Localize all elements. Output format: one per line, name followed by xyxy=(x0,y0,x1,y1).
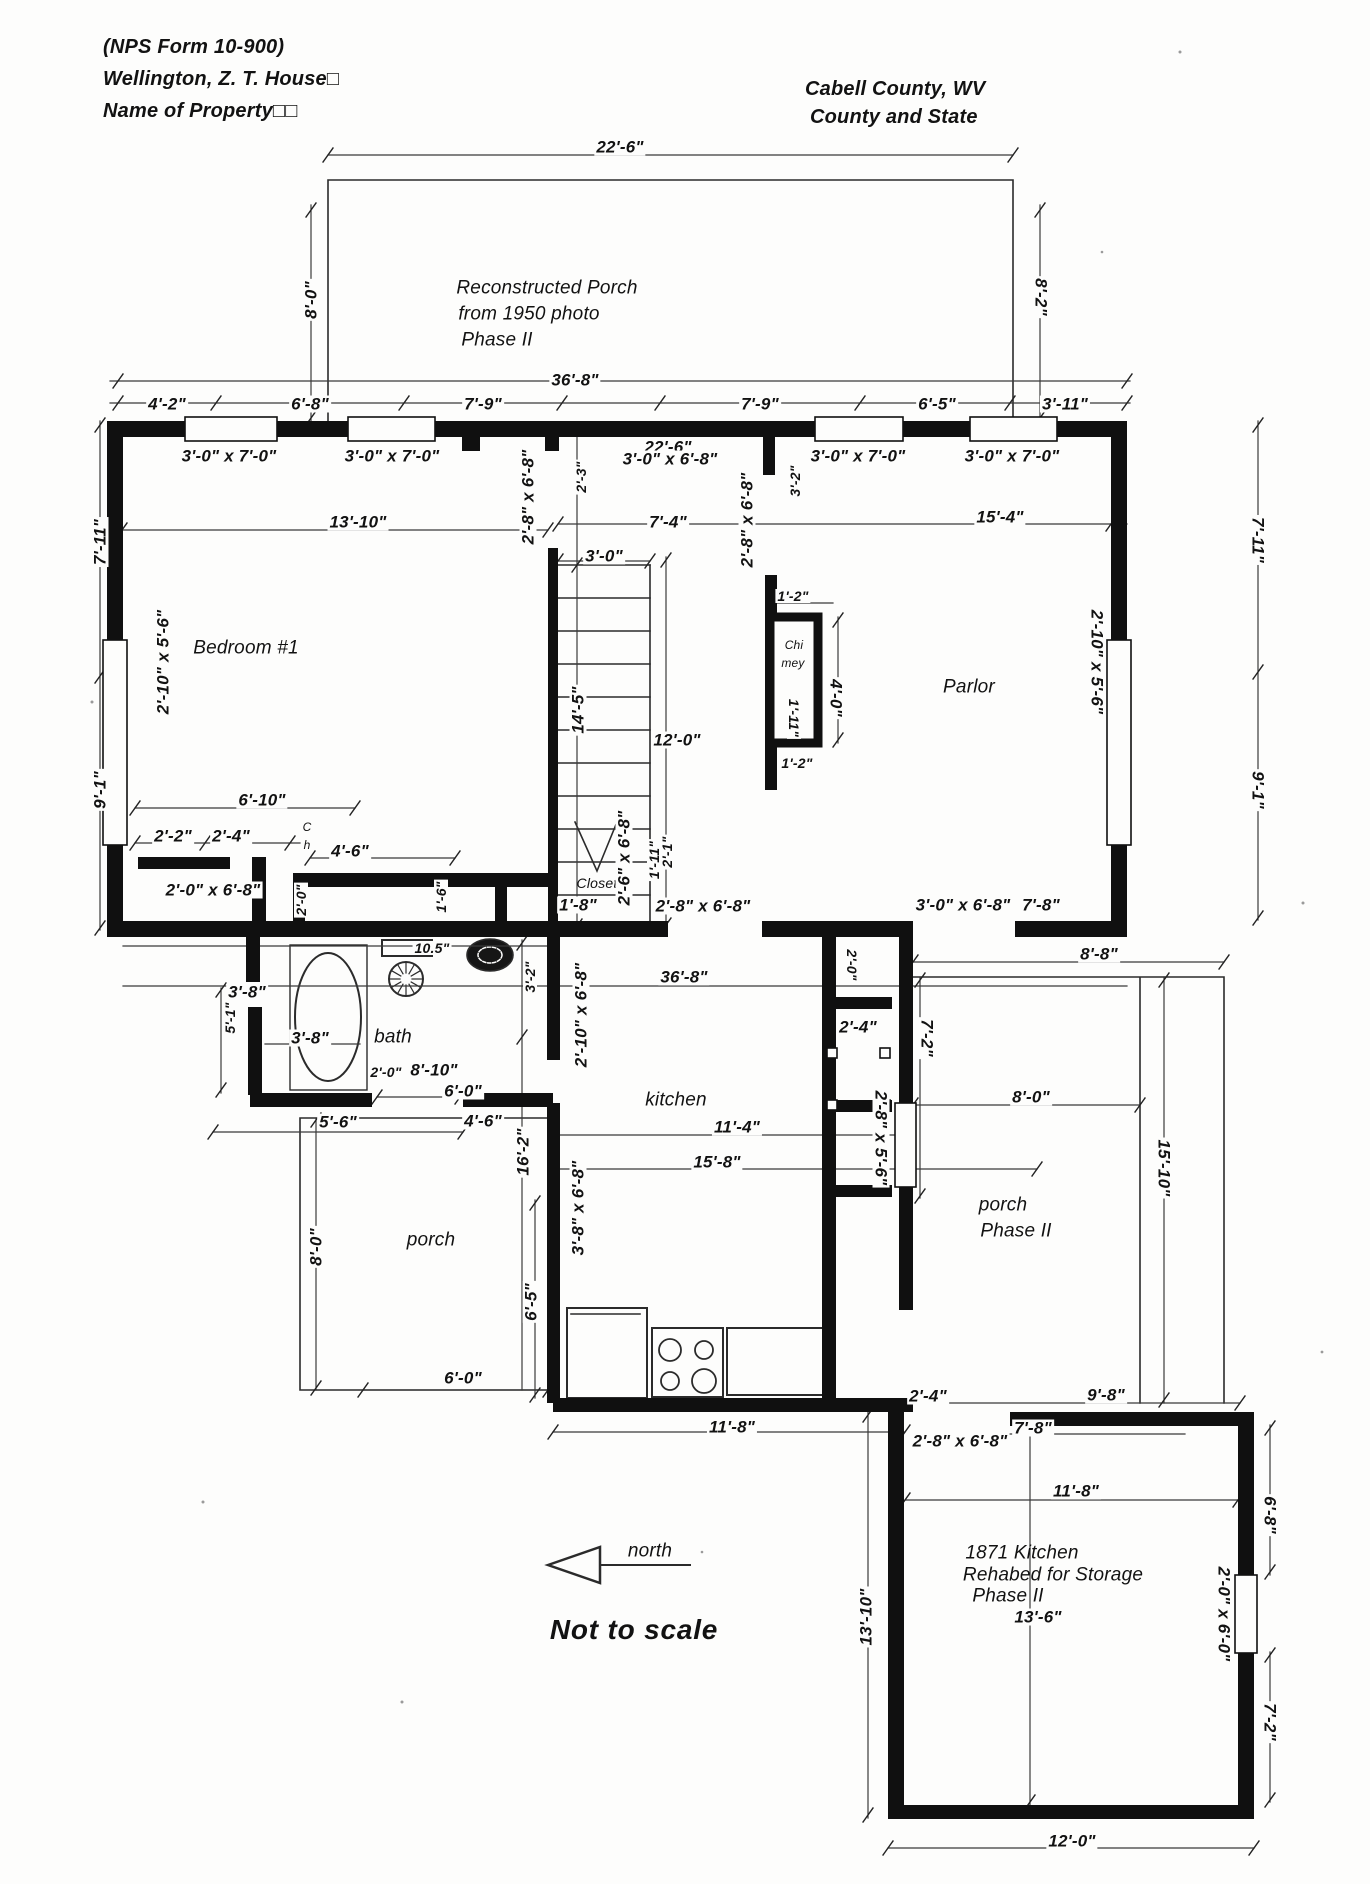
dim-label: 2'-0" x 6'-8" xyxy=(164,882,263,899)
dim-label: 6'-5" xyxy=(523,1281,540,1323)
room-label: Rehabed for Storage xyxy=(961,1566,1145,1585)
room-label: Closet xyxy=(575,876,620,890)
dim-label: 7'-11" xyxy=(1250,515,1267,565)
dim-label: 6'-8" xyxy=(289,396,331,413)
dim-label: 1'-11" xyxy=(787,697,801,739)
dim-label: 15'-8" xyxy=(691,1154,742,1171)
dim-label: 8'-0" xyxy=(308,1226,325,1268)
dim-label: 4'-0" xyxy=(828,677,845,719)
dim-label: 3'-0" x 7'-0" xyxy=(343,448,442,465)
dim-label: 13'-10" xyxy=(858,1587,875,1648)
dim-label: 3'-0" x 7'-0" xyxy=(963,448,1062,465)
dim-label: 10.5" xyxy=(413,941,452,955)
dim-label: 8'-10" xyxy=(408,1062,459,1079)
dim-label: 2'-8" x 6'-8" xyxy=(911,1433,1010,1450)
dim-label: 2'-6" x 6'-8" xyxy=(616,809,633,908)
dim-label: mey xyxy=(779,657,806,669)
dim-label: 6'-10" xyxy=(236,792,287,809)
dim-label: 8'-0" xyxy=(1010,1089,1052,1106)
dim-label: 14'-5" xyxy=(570,684,587,735)
document-page: (NPS Form 10-900) Wellington, Z. T. Hous… xyxy=(0,0,1370,1884)
room-label: Phase II xyxy=(978,1222,1053,1241)
room-label: porch xyxy=(405,1231,458,1250)
dim-label: 7'-9" xyxy=(739,396,781,413)
labels-layer: 22'-6"8'-0"8'-2"Reconstructed Porchfrom … xyxy=(0,0,1370,1884)
dim-label: 3'-0" x 6'-8" xyxy=(621,451,720,468)
dim-label: 5'-1" xyxy=(223,1000,237,1035)
dim-label: 2'-10" x 6'-8" xyxy=(573,961,590,1070)
dim-label: 2'-8" x 6'-8" xyxy=(654,898,753,915)
dim-label: 2'-0" x 6'-0" xyxy=(1216,1565,1233,1664)
dim-label: 36'-8" xyxy=(549,372,600,389)
room-label: 1871 Kitchen xyxy=(963,1544,1080,1563)
dim-label: 2'-0" xyxy=(294,882,308,917)
room-label: Parlor xyxy=(941,678,997,697)
room-label: from 1950 photo xyxy=(456,305,601,324)
dim-label: 15'-4" xyxy=(974,509,1025,526)
dim-label: 3'-0" x 7'-0" xyxy=(180,448,279,465)
dim-label: Chi xyxy=(783,639,806,651)
dim-label: 13'-10" xyxy=(328,514,389,531)
dim-label: 2'-8" x 5'-6" xyxy=(873,1089,890,1188)
dim-label: 7'-2" xyxy=(919,1017,936,1059)
dim-label: 4'-2" xyxy=(146,396,188,413)
dim-label: 2'-10" x 5'-6" xyxy=(155,608,172,717)
dim-label: 2'-2" xyxy=(152,828,194,845)
dim-label: 13'-6" xyxy=(1012,1609,1063,1626)
dim-label: 4'-6" xyxy=(462,1113,504,1130)
dim-label: h xyxy=(302,839,313,851)
dim-label: 9'-1" xyxy=(1250,769,1267,811)
dim-label: 3'-8" x 6'-8" xyxy=(570,1159,587,1258)
scale-note: Not to scale xyxy=(548,1616,720,1644)
room-label: Reconstructed Porch xyxy=(454,279,639,298)
dim-label: 6'-8" xyxy=(1262,1494,1279,1536)
dim-label: 7'-8" xyxy=(1012,1420,1054,1437)
dim-label: 4'-6" xyxy=(329,843,371,860)
dim-label: 2'-8" x 6'-8" xyxy=(739,471,756,570)
dim-label: 2'-0" xyxy=(845,947,859,982)
dim-label: 16'-2" xyxy=(515,1126,532,1177)
dim-label: 3'-0" x 6'-8" xyxy=(914,897,1013,914)
dim-label: 2'-4" xyxy=(837,1019,879,1036)
dim-label: 6'-5" xyxy=(916,396,958,413)
dim-label: 2'-10" x 5'-6" xyxy=(1089,608,1106,717)
dim-label: 1'-6" xyxy=(434,879,448,914)
room-label: Phase II xyxy=(459,331,534,350)
dim-label: 7'-4" xyxy=(647,514,689,531)
dim-label: 7'-8" xyxy=(1020,897,1062,914)
dim-label: 1'-2" xyxy=(779,756,814,770)
dim-label: 2'-4" xyxy=(907,1388,949,1405)
dim-label: 7'-2" xyxy=(1262,1701,1279,1743)
dim-label: 11'-8" xyxy=(1051,1483,1101,1500)
dim-label: 3'-0" x 7'-0" xyxy=(809,448,908,465)
dim-label: 6'-0" xyxy=(442,1370,484,1387)
dim-label: 2'-1" xyxy=(660,834,674,869)
dim-label: 6'-0" xyxy=(442,1083,484,1100)
room-label: bath xyxy=(372,1028,414,1047)
dim-label: 8'-8" xyxy=(1078,946,1120,963)
dim-label: 1'-8" xyxy=(557,897,599,914)
dim-label: 8'-2" xyxy=(1033,276,1050,318)
room-label: north xyxy=(626,1542,674,1561)
dim-label: 22'-6" xyxy=(594,139,645,156)
dim-label: 15'-10" xyxy=(1156,1138,1173,1199)
dim-label: 2'-0" xyxy=(368,1065,403,1079)
dim-label: 5'-6" xyxy=(317,1114,359,1131)
dim-label: C xyxy=(301,821,314,833)
dim-label: 1'-2" xyxy=(775,589,810,603)
dim-label: 12'-0" xyxy=(1046,1833,1097,1850)
dim-label: 2'-3" xyxy=(574,459,588,494)
dim-label: 7'-9" xyxy=(462,396,504,413)
room-label: Bedroom #1 xyxy=(191,639,301,658)
dim-label: 3'-2" xyxy=(523,959,537,994)
room-label: porch xyxy=(977,1196,1030,1215)
room-label: kitchen xyxy=(643,1091,709,1110)
dim-label: 2'-8" x 6'-8" xyxy=(520,448,537,547)
dim-label: 36'-8" xyxy=(658,969,709,986)
dim-label: 11'-8" xyxy=(707,1419,757,1436)
dim-label: 3'-2" xyxy=(788,463,802,498)
dim-label: 3'-8" xyxy=(289,1030,331,1047)
dim-label: 9'-1" xyxy=(92,769,109,811)
dim-label: 3'-11" xyxy=(1040,396,1090,413)
dim-label: 9'-8" xyxy=(1085,1387,1127,1404)
dim-label: 11'-4" xyxy=(712,1119,762,1136)
dim-label: 8'-0" xyxy=(303,279,320,321)
dim-label: 3'-0" xyxy=(583,548,625,565)
dim-label: 2'-4" xyxy=(210,828,252,845)
dim-label: 3'-8" xyxy=(226,984,268,1001)
room-label: Phase II xyxy=(970,1587,1045,1606)
dim-label: 7'-11" xyxy=(92,517,109,567)
dim-label: 12'-0" xyxy=(651,732,702,749)
